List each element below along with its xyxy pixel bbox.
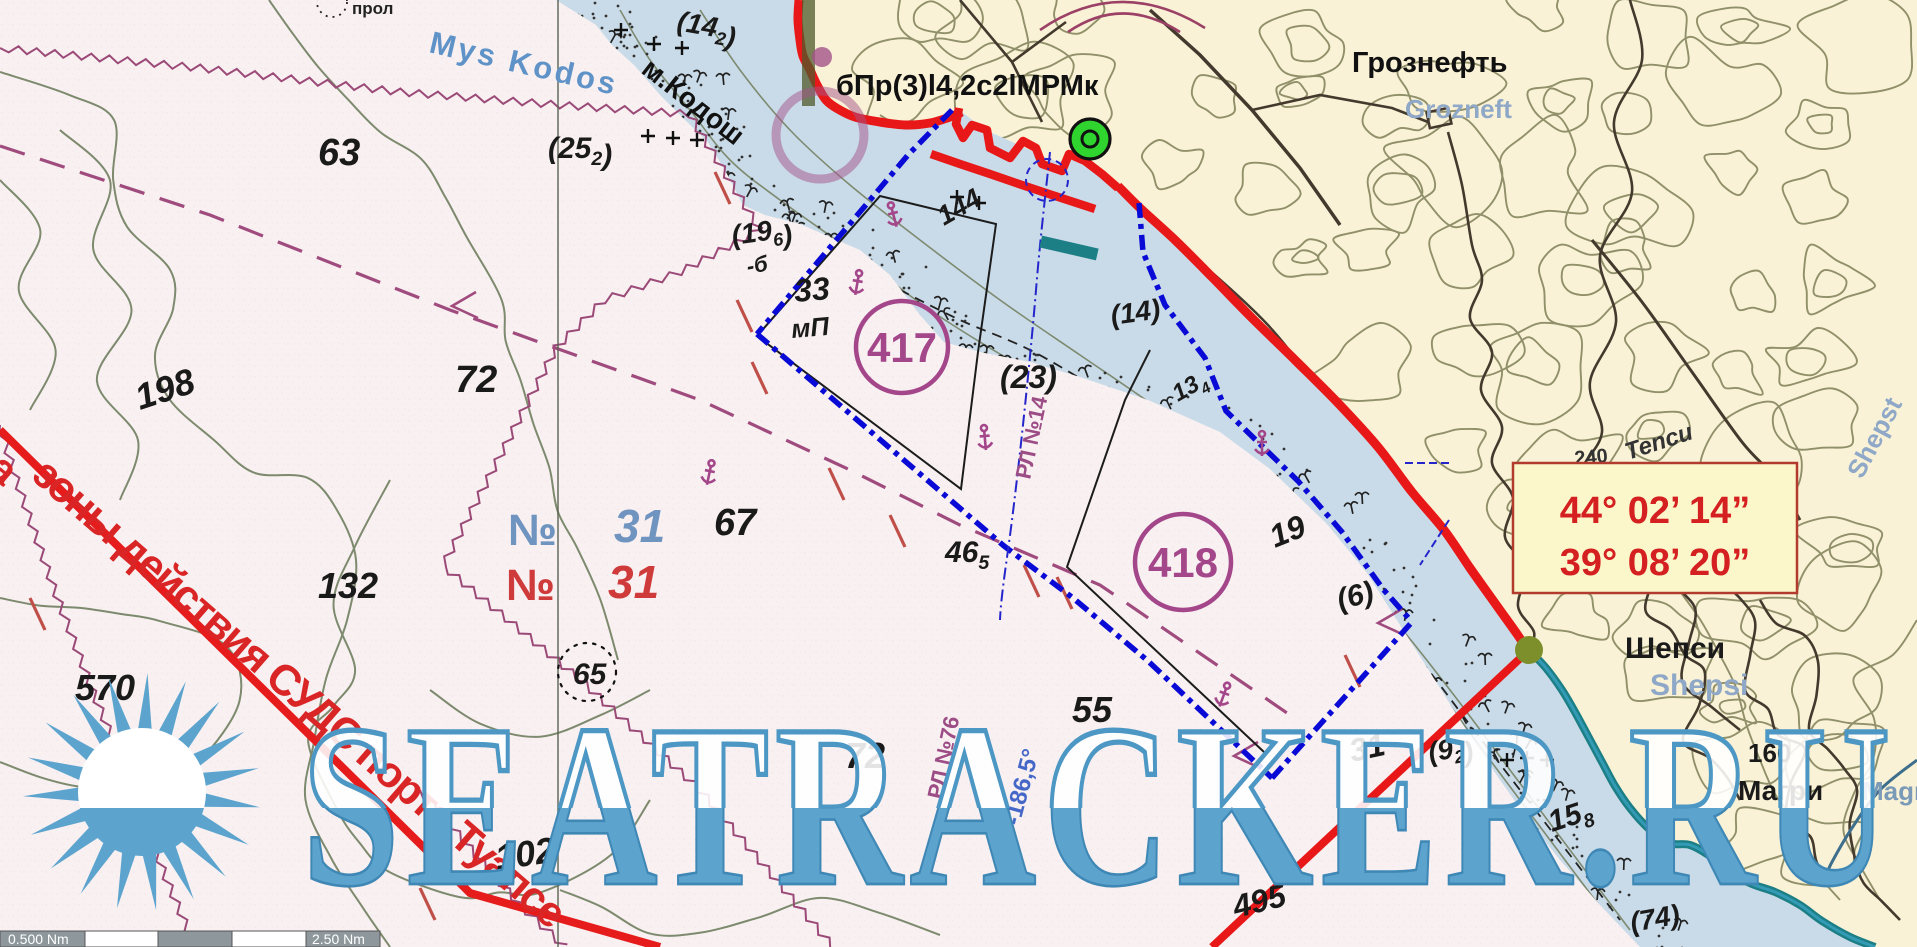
svg-text:570: 570 (75, 667, 135, 708)
svg-text:72: 72 (455, 359, 497, 401)
svg-text:417: 417 (867, 324, 937, 371)
svg-text:мП: мП (790, 311, 832, 344)
svg-text:418: 418 (1148, 539, 1218, 586)
svg-text:0.500 Nm: 0.500 Nm (8, 931, 69, 947)
svg-text:33: 33 (792, 270, 831, 309)
svg-text:Шепси: Шепси (1625, 632, 1725, 665)
svg-text:бПр(3)l4,2c2lМРМк: бПр(3)l4,2c2lМРМк (836, 70, 1099, 102)
svg-text:Грознефть: Грознефть (1352, 47, 1507, 79)
svg-text:31: 31 (614, 500, 665, 552)
svg-text:прол: прол (352, 0, 393, 18)
svg-text:67: 67 (714, 502, 758, 544)
svg-text:39° 08’ 20”: 39° 08’ 20” (1560, 542, 1751, 584)
svg-text:132: 132 (318, 565, 378, 606)
svg-text:2.50 Nm: 2.50 Nm (312, 931, 365, 947)
svg-text:44° 02’ 14”: 44° 02’ 14” (1560, 490, 1751, 532)
svg-text:Grozneft: Grozneft (1405, 94, 1512, 124)
svg-text:(23): (23) (1000, 359, 1057, 395)
svg-text:№: № (506, 561, 555, 610)
svg-text:31: 31 (608, 556, 659, 608)
svg-text:63: 63 (318, 132, 360, 174)
svg-text:№: № (508, 506, 557, 555)
